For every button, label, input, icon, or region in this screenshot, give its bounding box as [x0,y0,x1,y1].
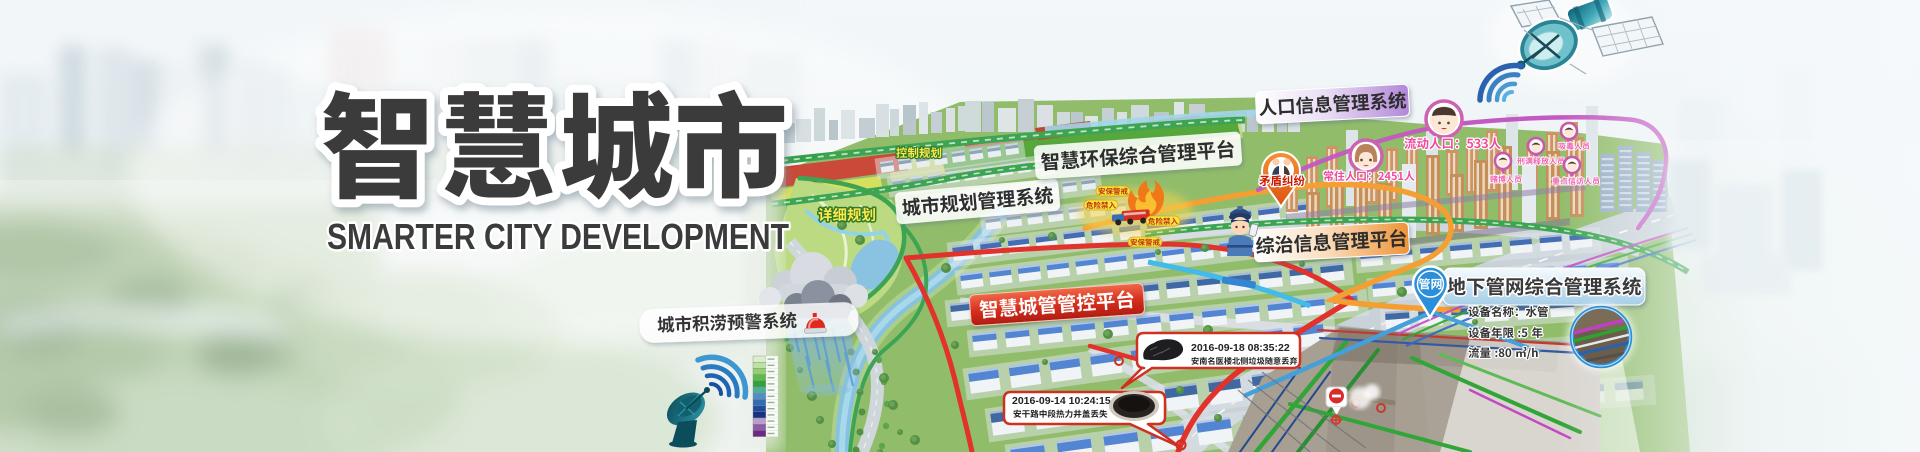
svg-text:2016-09-14 10:24:15: 2016-09-14 10:24:15 [1012,395,1111,407]
svg-text:2016-09-18 08:35:22: 2016-09-18 08:35:22 [1191,342,1290,354]
svg-text:SMARTER CITY DEVELOPMENT: SMARTER CITY DEVELOPMENT [327,216,789,257]
